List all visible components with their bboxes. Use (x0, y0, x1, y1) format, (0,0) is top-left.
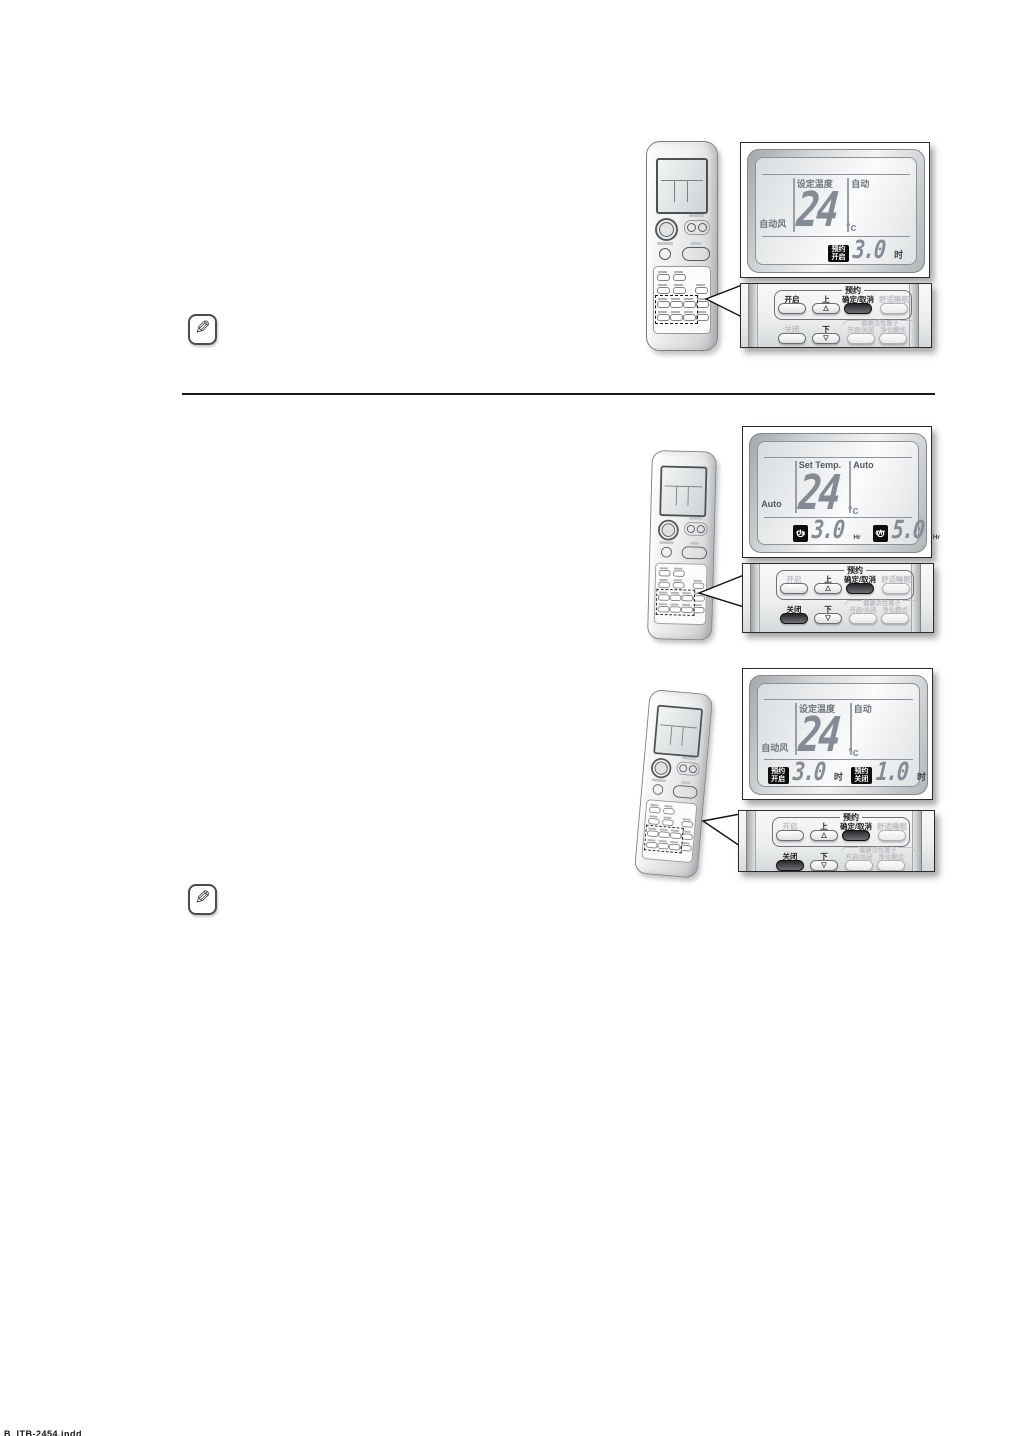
timer-down-button: ▽ (810, 860, 838, 871)
mini-button (649, 806, 661, 813)
timer-off-hours: 5.0 (891, 517, 924, 542)
timer-buttons-highlight-box (655, 295, 698, 324)
hour-unit: 时 (834, 770, 843, 783)
timer-buttons-highlight-box (644, 825, 684, 854)
mode-select-button (684, 522, 708, 536)
timer-off-button (778, 333, 806, 344)
mini-button (657, 287, 670, 294)
timer-on-button (778, 303, 806, 314)
fan-button (672, 785, 698, 799)
fan-label (690, 542, 699, 545)
mode-label (689, 214, 704, 217)
remote-edge-left (748, 284, 758, 347)
hour-unit: Hr (853, 534, 860, 541)
timer-up-button: △ (814, 583, 842, 594)
remote-control-3 (634, 689, 713, 879)
ion-mode-button (879, 333, 907, 344)
sleep-button (882, 583, 910, 594)
note-icon: ✎ (188, 314, 217, 345)
mini-button (663, 808, 675, 815)
callout-pointer-3 (700, 810, 740, 850)
timer-off-hours: 1.0 (875, 759, 908, 784)
timer-buttons-highlight-box (656, 589, 695, 616)
mini-button (659, 570, 671, 577)
down-triangle-icon: ▽ (813, 334, 839, 343)
auto-fan-label: 自动风 (759, 217, 786, 230)
hour-unit: Hr (933, 534, 940, 541)
ion-onoff-button (847, 333, 875, 344)
lcd-screen: 设定温度 自动 自动风 24°c 预约开启 3.0 时 预约关闭 1 (757, 683, 920, 787)
lcd-screen: 设定温度 自动 自动风 24°c 预约开启 3.0 时 (755, 157, 917, 265)
timer-on-button (776, 830, 804, 841)
remote-edge-left (750, 564, 760, 632)
mode-select-button (676, 761, 700, 776)
lcd-callout-3: 设定温度 自动 自动风 24°c 预约开启 3.0 时 预约关闭 1 (742, 668, 933, 800)
lcd-bezel: Set Temp. Auto Auto 24°c On 3.0 Hr (749, 433, 927, 553)
button-panel-callout-2: 预约 开启 上 确定/取消 舒适睡眠 △ 关闭 下 健康活性离子 开启/关闭 净… (742, 563, 934, 633)
hour-unit: 时 (894, 248, 903, 261)
timer-on-badge: On (793, 525, 808, 542)
mode-label (689, 517, 703, 520)
remote-lower-panel (641, 799, 697, 863)
timer-on-group: On 3.0 Hr (793, 517, 860, 542)
confirm-cancel-button (844, 303, 872, 314)
timer-up-button: △ (812, 303, 840, 314)
lcd-callout-2: Set Temp. Auto Auto 24°c On 3.0 Hr (742, 426, 932, 558)
up-triangle-icon: △ (811, 831, 837, 840)
lcd-line (764, 699, 912, 700)
fan-button (682, 546, 708, 559)
timer-off-button (780, 613, 808, 624)
power-button (658, 519, 679, 540)
temp-button (659, 248, 671, 260)
ion-mode-button (877, 860, 905, 871)
temp-label (657, 242, 673, 245)
temp-unit: °c (848, 505, 859, 517)
ion-group-brace: 健康活性离子 (841, 845, 915, 851)
mini-button (657, 274, 670, 281)
section-divider (182, 393, 935, 395)
temp-button (652, 784, 663, 795)
timer-on-badge: 预约开启 (768, 767, 789, 784)
timer-off-button (776, 860, 804, 871)
timer-on-hours: 3.0 (852, 237, 885, 262)
footer-filename: B_ITB-2454.indd (4, 1429, 82, 1436)
remote-edge-right (912, 811, 922, 871)
timer-readout: 预约开启 3.0 时 预约关闭 1.0 时 (768, 764, 926, 784)
fan-label (691, 242, 701, 245)
remote-lcd-window (656, 158, 708, 214)
timer-power-icon (796, 529, 805, 537)
hour-unit: 时 (917, 770, 926, 783)
timer-off-group: Off 5.0 Hr (873, 517, 940, 542)
mini-button (648, 818, 660, 825)
pencil-icon: ✎ (190, 886, 215, 911)
remote-lcd-window (659, 466, 707, 518)
remote-edge-left (746, 811, 756, 871)
button-panel-callout-1: 预约 开启 上 确定/取消 舒适睡眠 △ 关闭 下 健康活性离子 开启/关闭 净… (740, 283, 932, 348)
lcd-callout-1: 设定温度 自动 自动风 24°c 预约开启 3.0 时 (740, 142, 930, 278)
mini-button (673, 274, 686, 281)
mini-button (673, 582, 685, 589)
temp-button (661, 547, 672, 558)
button-panel-callout-3: 预约 开启 上 确定/取消 舒适睡眠 △ 关闭 下 健康活性离子 开启/关闭 净… (738, 810, 935, 872)
ion-group-brace: 健康活性离子 (843, 318, 917, 324)
ion-group-brace: 健康活性离子 (845, 598, 919, 604)
remote-lcd-window (653, 705, 703, 758)
temperature-readout: 24°c (795, 186, 856, 234)
ion-onoff-button (849, 613, 877, 624)
ion-onoff-button (845, 860, 873, 871)
manual-page: 设定温度 自动 自动风 24°c 预约开启 3.0 时 预约 开启 上 确定/取… (0, 0, 1015, 1436)
lcd-bezel: 设定温度 自动 自动风 24°c 预约开启 3.0 时 (747, 149, 925, 273)
note-icon: ✎ (188, 884, 217, 915)
timer-power-icon (876, 529, 885, 537)
ion-mode-button (881, 613, 909, 624)
temp-unit: °c (848, 747, 859, 759)
fan-label (681, 781, 690, 784)
temp-label (659, 541, 673, 544)
timer-on-hours: 3.0 (811, 517, 844, 542)
timer-off-badge: 预约关闭 (851, 767, 872, 784)
timer-readout: On 3.0 Hr Off 5.0 Hr (793, 522, 940, 542)
timer-on-group: 预约开启 3.0 时 (768, 759, 843, 784)
timer-off-badge: Off (873, 525, 888, 542)
timer-on-hours: 3.0 (792, 759, 825, 784)
confirm-cancel-button (842, 830, 870, 841)
timer-readout: 预约开启 3.0 时 (828, 241, 903, 262)
callout-pointer-1 (702, 282, 742, 322)
auto-fan-label: Auto (761, 499, 782, 509)
down-triangle-icon: ▽ (811, 861, 837, 870)
temperature-readout: 24°c (797, 469, 858, 517)
mode-select-button (684, 220, 710, 235)
fan-button (682, 247, 710, 261)
timer-up-button: △ (810, 830, 838, 841)
timer-off-group: 预约关闭 1.0 时 (851, 759, 926, 784)
confirm-cancel-button (846, 583, 874, 594)
lcd-bezel: 设定温度 自动 自动风 24°c 预约开启 3.0 时 预约关闭 1 (749, 675, 928, 795)
mini-button (662, 819, 674, 826)
temperature-readout: 24°c (797, 711, 858, 759)
mini-button (673, 570, 685, 577)
power-button (650, 757, 672, 779)
temp-label (652, 778, 666, 782)
lcd-screen: Set Temp. Auto Auto 24°c On 3.0 Hr (757, 441, 919, 545)
timer-down-button: ▽ (814, 613, 842, 624)
sleep-button (880, 303, 908, 314)
auto-fan-label: 自动风 (761, 741, 788, 754)
down-triangle-icon: ▽ (815, 614, 841, 623)
up-triangle-icon: △ (815, 584, 841, 593)
power-button (655, 218, 678, 241)
mode-label (682, 756, 695, 760)
timer-down-button: ▽ (812, 333, 840, 344)
mini-button (658, 582, 670, 589)
temp-unit: °c (846, 222, 857, 234)
sleep-button (878, 830, 906, 841)
up-triangle-icon: △ (813, 304, 839, 313)
lcd-line (762, 236, 909, 237)
mini-button (673, 287, 686, 294)
lcd-line (762, 174, 909, 175)
pencil-icon: ✎ (190, 316, 215, 341)
timer-on-badge: 预约开启 (828, 245, 849, 262)
mini-button (681, 821, 693, 828)
lcd-line (764, 457, 911, 458)
timer-on-button (780, 583, 808, 594)
callout-pointer-2 (696, 573, 744, 613)
